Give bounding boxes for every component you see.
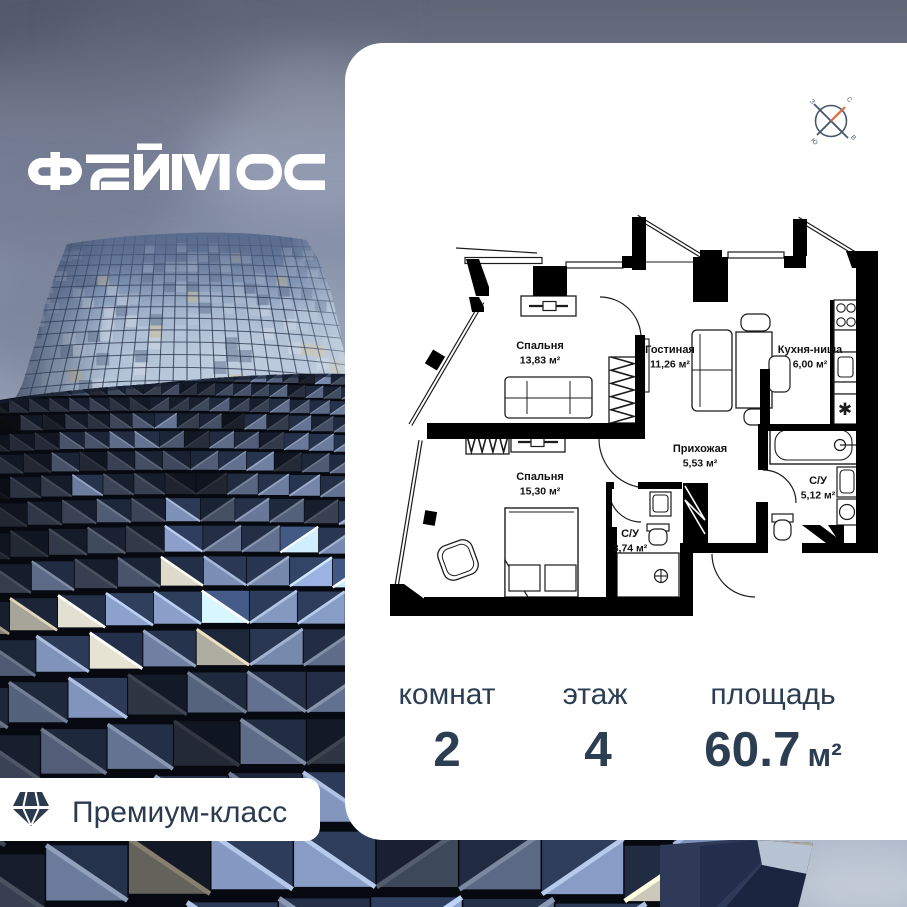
svg-text:В: В — [849, 134, 857, 142]
svg-text:2: 2 — [433, 722, 461, 777]
svg-text:4: 4 — [584, 722, 612, 777]
svg-text:5,53 м²: 5,53 м² — [683, 458, 718, 470]
svg-text:комнат: комнат — [398, 678, 495, 711]
svg-text:этаж: этаж — [563, 678, 628, 711]
svg-text:6,00 м²: 6,00 м² — [793, 359, 828, 371]
svg-text:Премиум-класс: Премиум-класс — [72, 796, 287, 829]
svg-text:Прихожая: Прихожая — [673, 443, 727, 455]
svg-text:15,30 м²: 15,30 м² — [520, 486, 561, 498]
svg-text:3,74 м²: 3,74 м² — [613, 543, 648, 555]
svg-text:С: С — [845, 96, 853, 104]
svg-text:5,12 м²: 5,12 м² — [801, 490, 836, 502]
svg-text:60.7м²: 60.7м² — [704, 722, 842, 777]
svg-text:Ю: Ю — [809, 137, 819, 147]
svg-text:С/У: С/У — [621, 528, 639, 540]
svg-text:11,26 м²: 11,26 м² — [650, 359, 690, 371]
svg-text:Гостиная: Гостиная — [645, 344, 695, 356]
svg-text:13,83 м²: 13,83 м² — [520, 355, 561, 367]
svg-text:С/У: С/У — [809, 475, 827, 487]
svg-text:Спальня: Спальня — [516, 340, 564, 352]
svg-text:площадь: площадь — [710, 678, 835, 711]
svg-text:Спальня: Спальня — [516, 471, 564, 483]
svg-text:✱: ✱ — [838, 400, 852, 419]
svg-text:Кухня-ниша: Кухня-ниша — [778, 344, 843, 356]
